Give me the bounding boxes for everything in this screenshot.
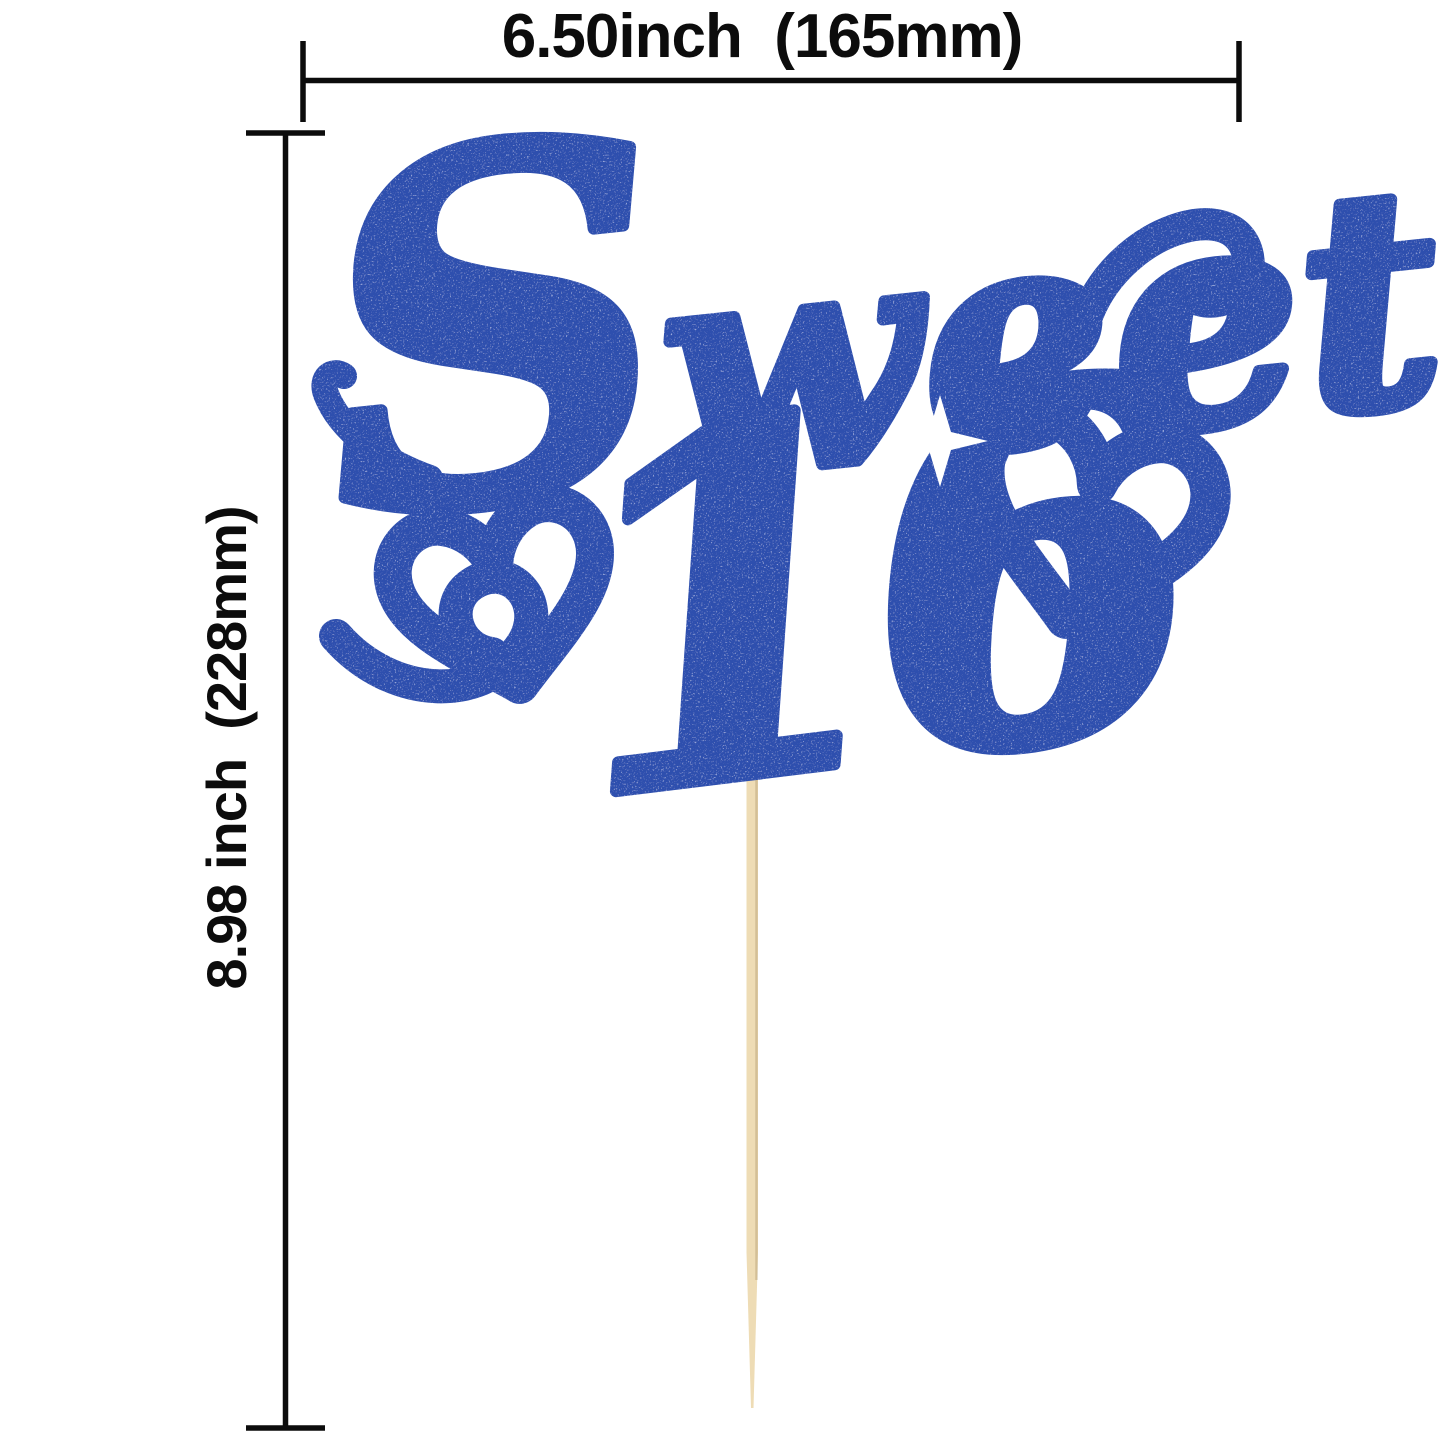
height-dimension-label: 8.98 inch (228mm) [199, 506, 255, 989]
product-photo-canvas: Sweet 16 [0, 0, 1445, 1445]
sweet-16-topper: Sweet 16 [293, 0, 1445, 908]
width-dimension-label: 6.50inch (165mm) [502, 6, 1023, 68]
